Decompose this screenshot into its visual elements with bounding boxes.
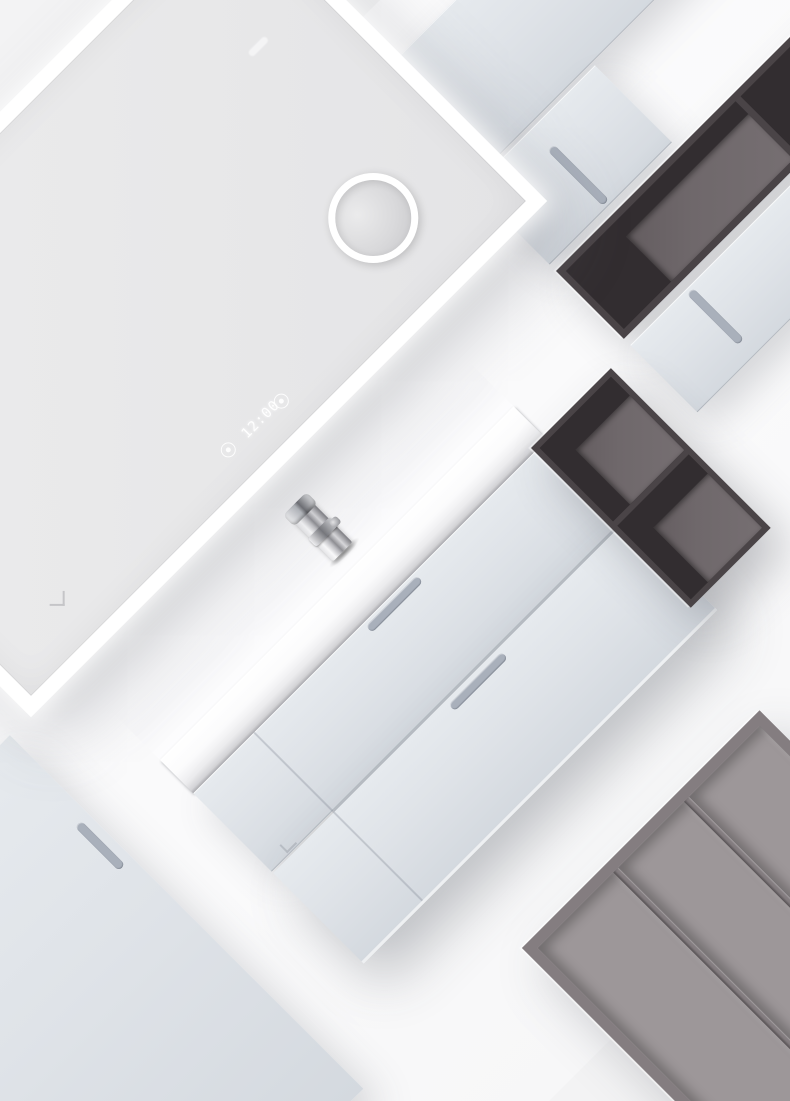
chevron-mark [50, 591, 65, 606]
touch-sensor-button [218, 439, 239, 460]
magnifying-mirror [310, 154, 437, 281]
product-flatlay-scene: 12:00 [0, 0, 790, 1101]
brand-smudge [247, 36, 269, 58]
door-handle [687, 288, 744, 345]
door-handle [547, 144, 609, 206]
